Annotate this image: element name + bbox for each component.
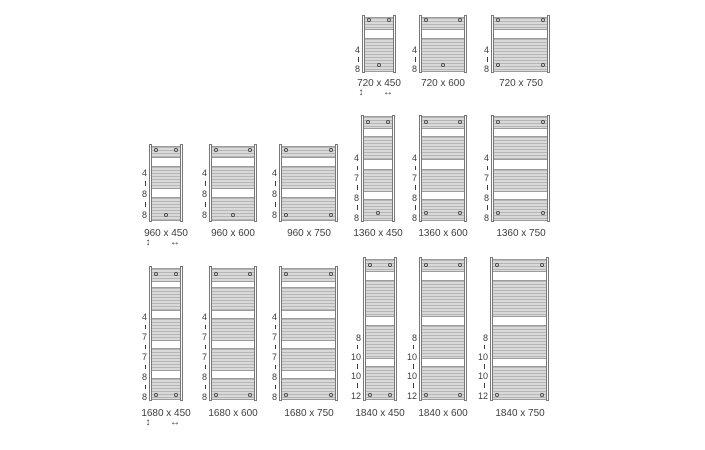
side-tube-right (393, 15, 396, 73)
group-separator-dash (205, 345, 206, 350)
top-plug-left-icon (284, 272, 288, 276)
size-label-1680x600: 1680 x 600 (208, 408, 257, 419)
rung-group (493, 280, 546, 318)
bottom-plug-right-icon (388, 393, 392, 397)
group-separator-dash (357, 364, 358, 369)
rung-count-label: 8 (129, 372, 147, 382)
top-plug-left-icon (424, 263, 428, 267)
side-tube-right (394, 257, 397, 401)
rung-count-label: 12 (343, 391, 361, 401)
rung-group (493, 366, 546, 401)
rung-group (212, 318, 254, 341)
group-separator-dash (358, 57, 359, 62)
bottom-plug-center-icon (231, 213, 235, 217)
group-separator-dash (357, 185, 358, 190)
rung-count-label: 10 (470, 371, 488, 381)
rung-count-label: 4 (471, 45, 489, 55)
top-plug-left-icon (214, 272, 218, 276)
top-plug-right-icon (387, 18, 391, 22)
rung-group (494, 199, 547, 221)
rung-count-label: 8 (189, 392, 207, 402)
rung-count-label: 8 (399, 64, 417, 74)
rung-count-label: 8 (341, 213, 359, 223)
width-arrow-icon: ↔ (170, 238, 180, 248)
rung-count-label: 7 (471, 173, 489, 183)
rung-group (152, 348, 180, 371)
top-plug-right-icon (329, 148, 333, 152)
rung-count-label: 4 (471, 153, 489, 163)
bottom-plug-right-icon (458, 393, 462, 397)
radiator-1840x600 (419, 257, 467, 401)
rung-count-label: 8 (343, 333, 361, 343)
size-label-1360x750: 1360 x 750 (496, 228, 545, 239)
bottom-plug-left-icon (495, 393, 499, 397)
top-plug-left-icon (154, 148, 158, 152)
group-separator-dash (415, 205, 416, 210)
rung-count-label: 8 (129, 392, 147, 402)
radiator-1680x600 (209, 266, 257, 401)
rung-count-label: 8 (399, 333, 417, 343)
rung-group (282, 378, 335, 401)
rung-count-label: 4 (129, 312, 147, 322)
side-tube-right (254, 266, 257, 401)
rung-count-label: 8 (189, 210, 207, 220)
rung-group (212, 287, 254, 311)
group-separator-dash (145, 202, 146, 207)
group-separator-dash (487, 205, 488, 210)
group-separator-dash (357, 383, 358, 388)
radiator-1360x750 (491, 115, 550, 222)
bottom-plug-center-icon (376, 211, 380, 215)
bottom-plug-right-icon (541, 63, 545, 67)
bottom-plug-right-icon (541, 211, 545, 215)
radiator-720x600 (419, 15, 467, 73)
rung-count-label: 4 (341, 153, 359, 163)
rung-count-label: 8 (399, 213, 417, 223)
rung-count-label: 4 (189, 312, 207, 322)
rung-count-label: 8 (259, 372, 277, 382)
rung-count-label: 10 (343, 352, 361, 362)
rung-group (282, 146, 335, 159)
height-arrow-icon: ↕ (146, 238, 151, 248)
top-plug-right-icon (388, 263, 392, 267)
rung-count-label: 10 (399, 371, 417, 381)
height-arrow-icon: ↕ (359, 88, 364, 98)
group-separator-dash (275, 181, 276, 186)
side-tube-right (547, 15, 550, 73)
top-plug-right-icon (540, 263, 544, 267)
radiator-size-diagram: 48720 x 450↕↔48720 x 60048720 x 75048896… (0, 0, 705, 450)
width-arrow-icon: ↔ (170, 418, 180, 428)
bottom-plug-left-icon (284, 213, 288, 217)
rung-count-label: 8 (470, 333, 488, 343)
rung-group (422, 136, 464, 160)
group-separator-dash (145, 325, 146, 330)
size-label-1840x750: 1840 x 750 (495, 408, 544, 419)
radiator-960x450 (149, 144, 183, 222)
rung-group (493, 325, 546, 359)
rung-group (282, 287, 335, 311)
rung-count-label: 8 (471, 193, 489, 203)
size-label-1840x600: 1840 x 600 (418, 408, 467, 419)
bottom-plug-center-icon (377, 63, 381, 67)
width-arrow-icon: ↔ (383, 88, 393, 98)
group-separator-dash (205, 181, 206, 186)
rung-group (282, 197, 335, 221)
rung-count-label: 7 (341, 173, 359, 183)
side-tube-right (464, 257, 467, 401)
side-tube-right (546, 257, 549, 401)
rung-group (152, 287, 180, 311)
rung-group (366, 325, 394, 359)
group-separator-dash (275, 325, 276, 330)
top-plug-left-icon (367, 18, 371, 22)
rung-count-label: 12 (399, 391, 417, 401)
group-separator-dash (357, 166, 358, 171)
rung-count-label: 7 (259, 332, 277, 342)
top-plug-left-icon (366, 120, 370, 124)
rung-count-label: 8 (129, 189, 147, 199)
bottom-plug-center-icon (164, 213, 168, 217)
rung-count-label: 10 (399, 352, 417, 362)
group-separator-dash (275, 365, 276, 370)
top-plug-right-icon (541, 18, 545, 22)
size-label-960x600: 960 x 600 (211, 228, 255, 239)
rung-group (494, 169, 547, 192)
rung-count-label: 8 (129, 210, 147, 220)
bottom-plug-left-icon (284, 393, 288, 397)
rung-group (364, 199, 392, 221)
group-separator-dash (275, 385, 276, 390)
group-separator-dash (415, 185, 416, 190)
bottom-plug-left-icon (368, 393, 372, 397)
rung-count-label: 8 (342, 64, 360, 74)
rung-count-label: 8 (189, 189, 207, 199)
rung-group (212, 146, 254, 159)
top-plug-left-icon (496, 18, 500, 22)
group-separator-dash (205, 385, 206, 390)
group-separator-dash (484, 383, 485, 388)
rung-group (366, 280, 394, 318)
rung-group (212, 348, 254, 371)
top-plug-left-icon (495, 263, 499, 267)
group-separator-dash (145, 365, 146, 370)
side-tube-right (335, 144, 338, 222)
radiator-1680x450 (149, 266, 183, 401)
side-tube-right (254, 144, 257, 222)
radiator-1840x450 (363, 257, 397, 401)
top-plug-left-icon (284, 148, 288, 152)
radiator-720x750 (491, 15, 550, 73)
bottom-plug-left-icon (154, 393, 158, 397)
top-plug-right-icon (248, 272, 252, 276)
size-label-960x450: 960 x 450 (144, 228, 188, 239)
rung-group (494, 38, 547, 73)
bottom-plug-right-icon (329, 213, 333, 217)
group-separator-dash (487, 166, 488, 171)
group-separator-dash (487, 185, 488, 190)
height-arrow-icon: ↕ (146, 418, 151, 428)
side-tube-right (547, 115, 550, 222)
bottom-plug-center-icon (441, 63, 445, 67)
radiator-960x600 (209, 144, 257, 222)
top-plug-left-icon (424, 120, 428, 124)
group-separator-dash (357, 345, 358, 350)
bottom-plug-left-icon (214, 393, 218, 397)
rung-group (494, 116, 547, 129)
group-separator-dash (145, 181, 146, 186)
group-separator-dash (357, 205, 358, 210)
bottom-plug-left-icon (496, 63, 500, 67)
bottom-plug-left-icon (424, 211, 428, 215)
rung-count-label: 8 (341, 193, 359, 203)
top-plug-left-icon (368, 263, 372, 267)
rung-group (282, 348, 335, 371)
group-separator-dash (413, 383, 414, 388)
rung-count-label: 4 (399, 153, 417, 163)
rung-count-label: 4 (342, 45, 360, 55)
side-tube-right (464, 15, 467, 73)
bottom-plug-left-icon (424, 393, 428, 397)
side-tube-right (392, 115, 395, 222)
group-separator-dash (415, 57, 416, 62)
rung-group (282, 166, 335, 189)
rung-count-label: 8 (259, 392, 277, 402)
radiator-1680x750 (279, 266, 338, 401)
top-plug-right-icon (458, 263, 462, 267)
rung-count-label: 10 (343, 371, 361, 381)
size-label-720x450: 720 x 450 (357, 78, 401, 89)
rung-group (422, 169, 464, 192)
rung-count-label: 8 (259, 189, 277, 199)
rung-group (494, 136, 547, 160)
bottom-plug-right-icon (174, 393, 178, 397)
group-separator-dash (275, 345, 276, 350)
top-plug-left-icon (214, 148, 218, 152)
bottom-plug-right-icon (458, 211, 462, 215)
rung-count-label: 4 (259, 168, 277, 178)
group-separator-dash (145, 385, 146, 390)
rung-group (152, 318, 180, 341)
top-plug-left-icon (154, 272, 158, 276)
radiator-960x750 (279, 144, 338, 222)
group-separator-dash (413, 364, 414, 369)
bottom-plug-left-icon (496, 211, 500, 215)
top-plug-right-icon (174, 148, 178, 152)
size-label-1360x600: 1360 x 600 (418, 228, 467, 239)
rung-count-label: 8 (399, 193, 417, 203)
rung-group (282, 318, 335, 341)
top-plug-right-icon (174, 272, 178, 276)
rung-count-label: 8 (471, 213, 489, 223)
rung-count-label: 4 (189, 168, 207, 178)
size-label-1680x750: 1680 x 750 (284, 408, 333, 419)
rung-count-label: 4 (129, 168, 147, 178)
top-plug-right-icon (248, 148, 252, 152)
rung-count-label: 4 (259, 312, 277, 322)
radiator-720x450 (362, 15, 396, 73)
rung-group (422, 199, 464, 221)
bottom-plug-right-icon (248, 393, 252, 397)
rung-count-label: 4 (399, 45, 417, 55)
rung-group (364, 136, 392, 160)
group-separator-dash (413, 345, 414, 350)
group-separator-dash (205, 202, 206, 207)
rung-count-label: 8 (471, 64, 489, 74)
rung-count-label: 8 (259, 210, 277, 220)
radiator-1360x600 (419, 115, 467, 222)
top-plug-right-icon (458, 120, 462, 124)
rung-group (212, 378, 254, 401)
bottom-plug-right-icon (540, 393, 544, 397)
radiator-1360x450 (361, 115, 395, 222)
side-tube-right (335, 266, 338, 401)
group-separator-dash (145, 345, 146, 350)
rung-group (152, 166, 180, 189)
rung-group (364, 169, 392, 192)
top-plug-left-icon (496, 120, 500, 124)
size-label-1840x450: 1840 x 450 (355, 408, 404, 419)
rung-group (494, 17, 547, 30)
bottom-plug-right-icon (329, 393, 333, 397)
top-plug-right-icon (329, 272, 333, 276)
size-label-720x600: 720 x 600 (421, 78, 465, 89)
group-separator-dash (205, 365, 206, 370)
rung-group (493, 259, 546, 273)
rung-count-label: 7 (399, 173, 417, 183)
rung-group (282, 268, 335, 282)
rung-count-label: 10 (470, 352, 488, 362)
top-plug-right-icon (386, 120, 390, 124)
top-plug-right-icon (541, 120, 545, 124)
top-plug-left-icon (424, 18, 428, 22)
group-separator-dash (487, 57, 488, 62)
rung-count-label: 7 (129, 332, 147, 342)
side-tube-right (464, 115, 467, 222)
size-label-720x750: 720 x 750 (499, 78, 543, 89)
rung-group (422, 280, 464, 318)
group-separator-dash (275, 202, 276, 207)
group-separator-dash (415, 166, 416, 171)
size-label-960x750: 960 x 750 (287, 228, 331, 239)
radiator-1840x750 (490, 257, 549, 401)
rung-count-label: 12 (470, 391, 488, 401)
rung-count-label: 7 (259, 352, 277, 362)
rung-count-label: 7 (189, 332, 207, 342)
rung-count-label: 7 (189, 352, 207, 362)
top-plug-right-icon (458, 18, 462, 22)
side-tube-right (180, 266, 183, 401)
size-label-1360x450: 1360 x 450 (353, 228, 402, 239)
rung-count-label: 8 (189, 372, 207, 382)
rung-group (212, 166, 254, 189)
rung-count-label: 7 (129, 352, 147, 362)
group-separator-dash (484, 345, 485, 350)
group-separator-dash (484, 364, 485, 369)
side-tube-right (180, 144, 183, 222)
group-separator-dash (205, 325, 206, 330)
rung-group (422, 325, 464, 359)
